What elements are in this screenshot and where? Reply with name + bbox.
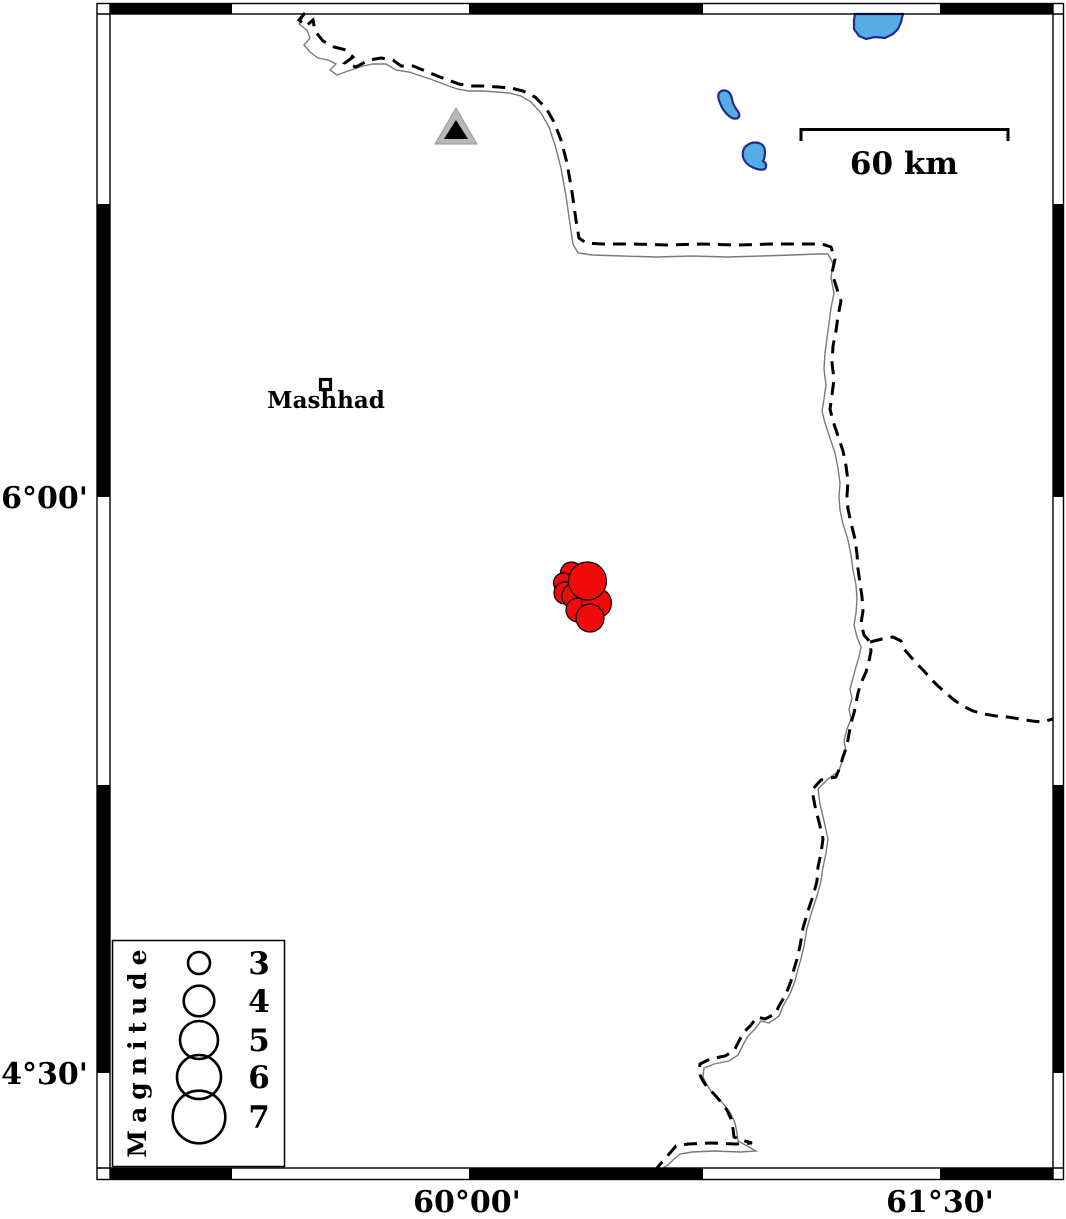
lon-label-60-00: 60°00' (413, 1185, 521, 1219)
city-label: Mashhad (267, 387, 385, 414)
legend-number: 7 (248, 1100, 270, 1136)
earthquake-marker (569, 562, 607, 600)
earthquake-marker (576, 604, 604, 632)
legend-title: Magnitude (123, 942, 152, 1157)
lat-label-36-00: 36°00' (0, 481, 88, 516)
lat-label-34-30: 34°30' (0, 1057, 88, 1092)
legend-number: 3 (248, 946, 270, 982)
seismicity-map: Mashhad 60 km 36°00' 34°30' 60°00' 61°30… (0, 0, 1066, 1219)
legend-number: 6 (248, 1060, 270, 1096)
lon-label-61-30: 61°30' (886, 1185, 994, 1219)
scale-bar-label: 60 km (850, 146, 958, 182)
map-canvas: Mashhad 60 km 36°00' 34°30' 60°00' 61°30… (0, 0, 1066, 1219)
magnitude-legend: Magnitude 34567 (113, 941, 285, 1167)
legend-number: 4 (248, 984, 270, 1020)
legend-number: 5 (248, 1023, 270, 1059)
